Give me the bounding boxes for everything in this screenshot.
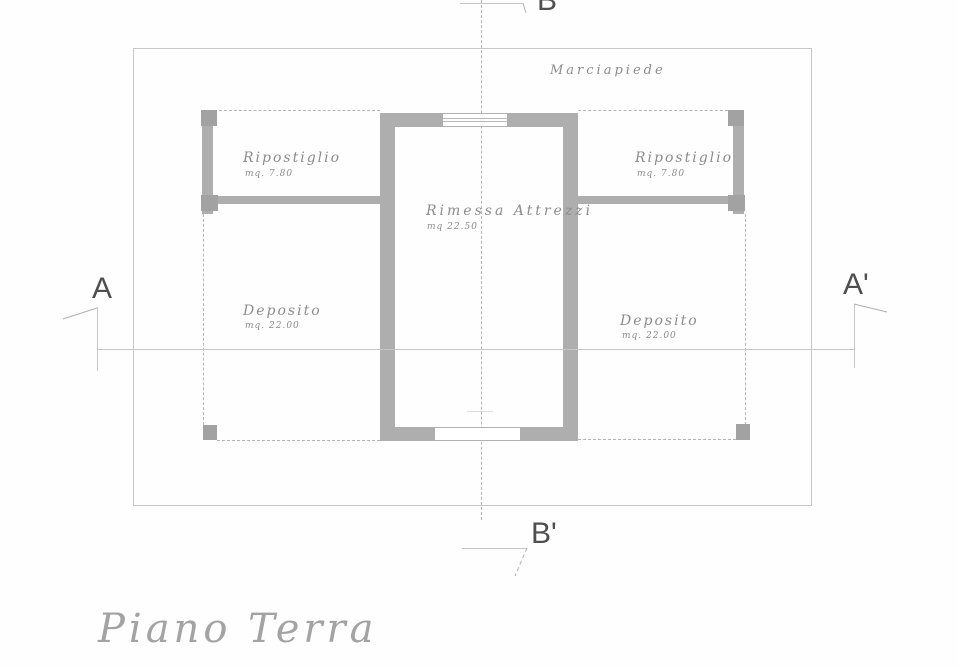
section-marker-b-prime-line [462, 548, 527, 549]
section-letter-a: A [92, 272, 112, 306]
room-label-deposito-right: Deposito [620, 313, 699, 329]
rimessa-south-wall-right [520, 427, 578, 441]
rimessa-west-wall-stub [368, 196, 380, 204]
section-letter-a-prime: A' [843, 268, 869, 302]
window-pane-line [443, 118, 507, 119]
section-letter-b-prime: B' [531, 517, 557, 551]
section-marker-a-line [97, 307, 98, 371]
sidewalk-label: Marciapiede [550, 63, 666, 78]
section-line-aa [97, 349, 854, 350]
drawing-title: Piano Terra [98, 606, 377, 652]
room-label-ripostiglio-right: Ripostiglio [635, 150, 733, 166]
left-wing-northwest-pillar [201, 110, 217, 126]
left-wing-bottom-dashed-line [217, 440, 380, 441]
section-marker-b-line [460, 3, 523, 4]
ripostiglio-right-bottom-wall [578, 196, 733, 204]
ripostiglio-left-bottom-wall [213, 196, 380, 204]
rimessa-inner-outline [394, 126, 565, 429]
right-wing-southeast-pillar [736, 424, 750, 440]
rimessa-north-wall-right [507, 113, 578, 127]
rimessa-door-opening [435, 427, 520, 441]
right-wing-junction-pillar [728, 195, 745, 211]
rimessa-east-wall [563, 113, 578, 441]
room-area-deposito-right: mq. 22.00 [622, 331, 677, 341]
room-area-rimessa: mq 22.50 [427, 222, 478, 232]
room-label-deposito-left: Deposito [243, 303, 322, 319]
deposito-right-east-dashed-line [745, 214, 746, 425]
section-marker-a-prime-line [854, 304, 855, 368]
left-wing-top-dashed-line [214, 110, 380, 111]
centerline-cross-tick [467, 411, 493, 412]
room-label-ripostiglio-left: Ripostiglio [243, 150, 341, 166]
right-wing-bottom-dashed-line [578, 439, 736, 440]
rimessa-west-wall [380, 113, 395, 441]
room-area-deposito-left: mq. 22.00 [245, 321, 300, 331]
rimessa-north-wall-left [380, 113, 443, 127]
right-wing-top-dashed-line [578, 110, 733, 111]
section-letter-b: B [537, 0, 557, 18]
window-pane-line [443, 121, 507, 122]
room-label-rimessa: Rimessa Attrezzi [426, 203, 593, 219]
rimessa-south-wall-left [380, 427, 435, 441]
rimessa-window-opening [443, 113, 507, 127]
floor-plan-canvas: A A' B B' Marciapiede Ripostiglio mq. 7.… [0, 0, 958, 667]
left-wing-southwest-pillar [203, 425, 217, 440]
room-area-ripostiglio-left: mq. 7.80 [245, 169, 293, 179]
room-area-ripostiglio-right: mq. 7.80 [637, 169, 685, 179]
deposito-left-west-dashed-line [203, 214, 204, 425]
left-wing-junction-pillar [201, 195, 218, 211]
right-wing-northeast-pillar [728, 110, 744, 126]
